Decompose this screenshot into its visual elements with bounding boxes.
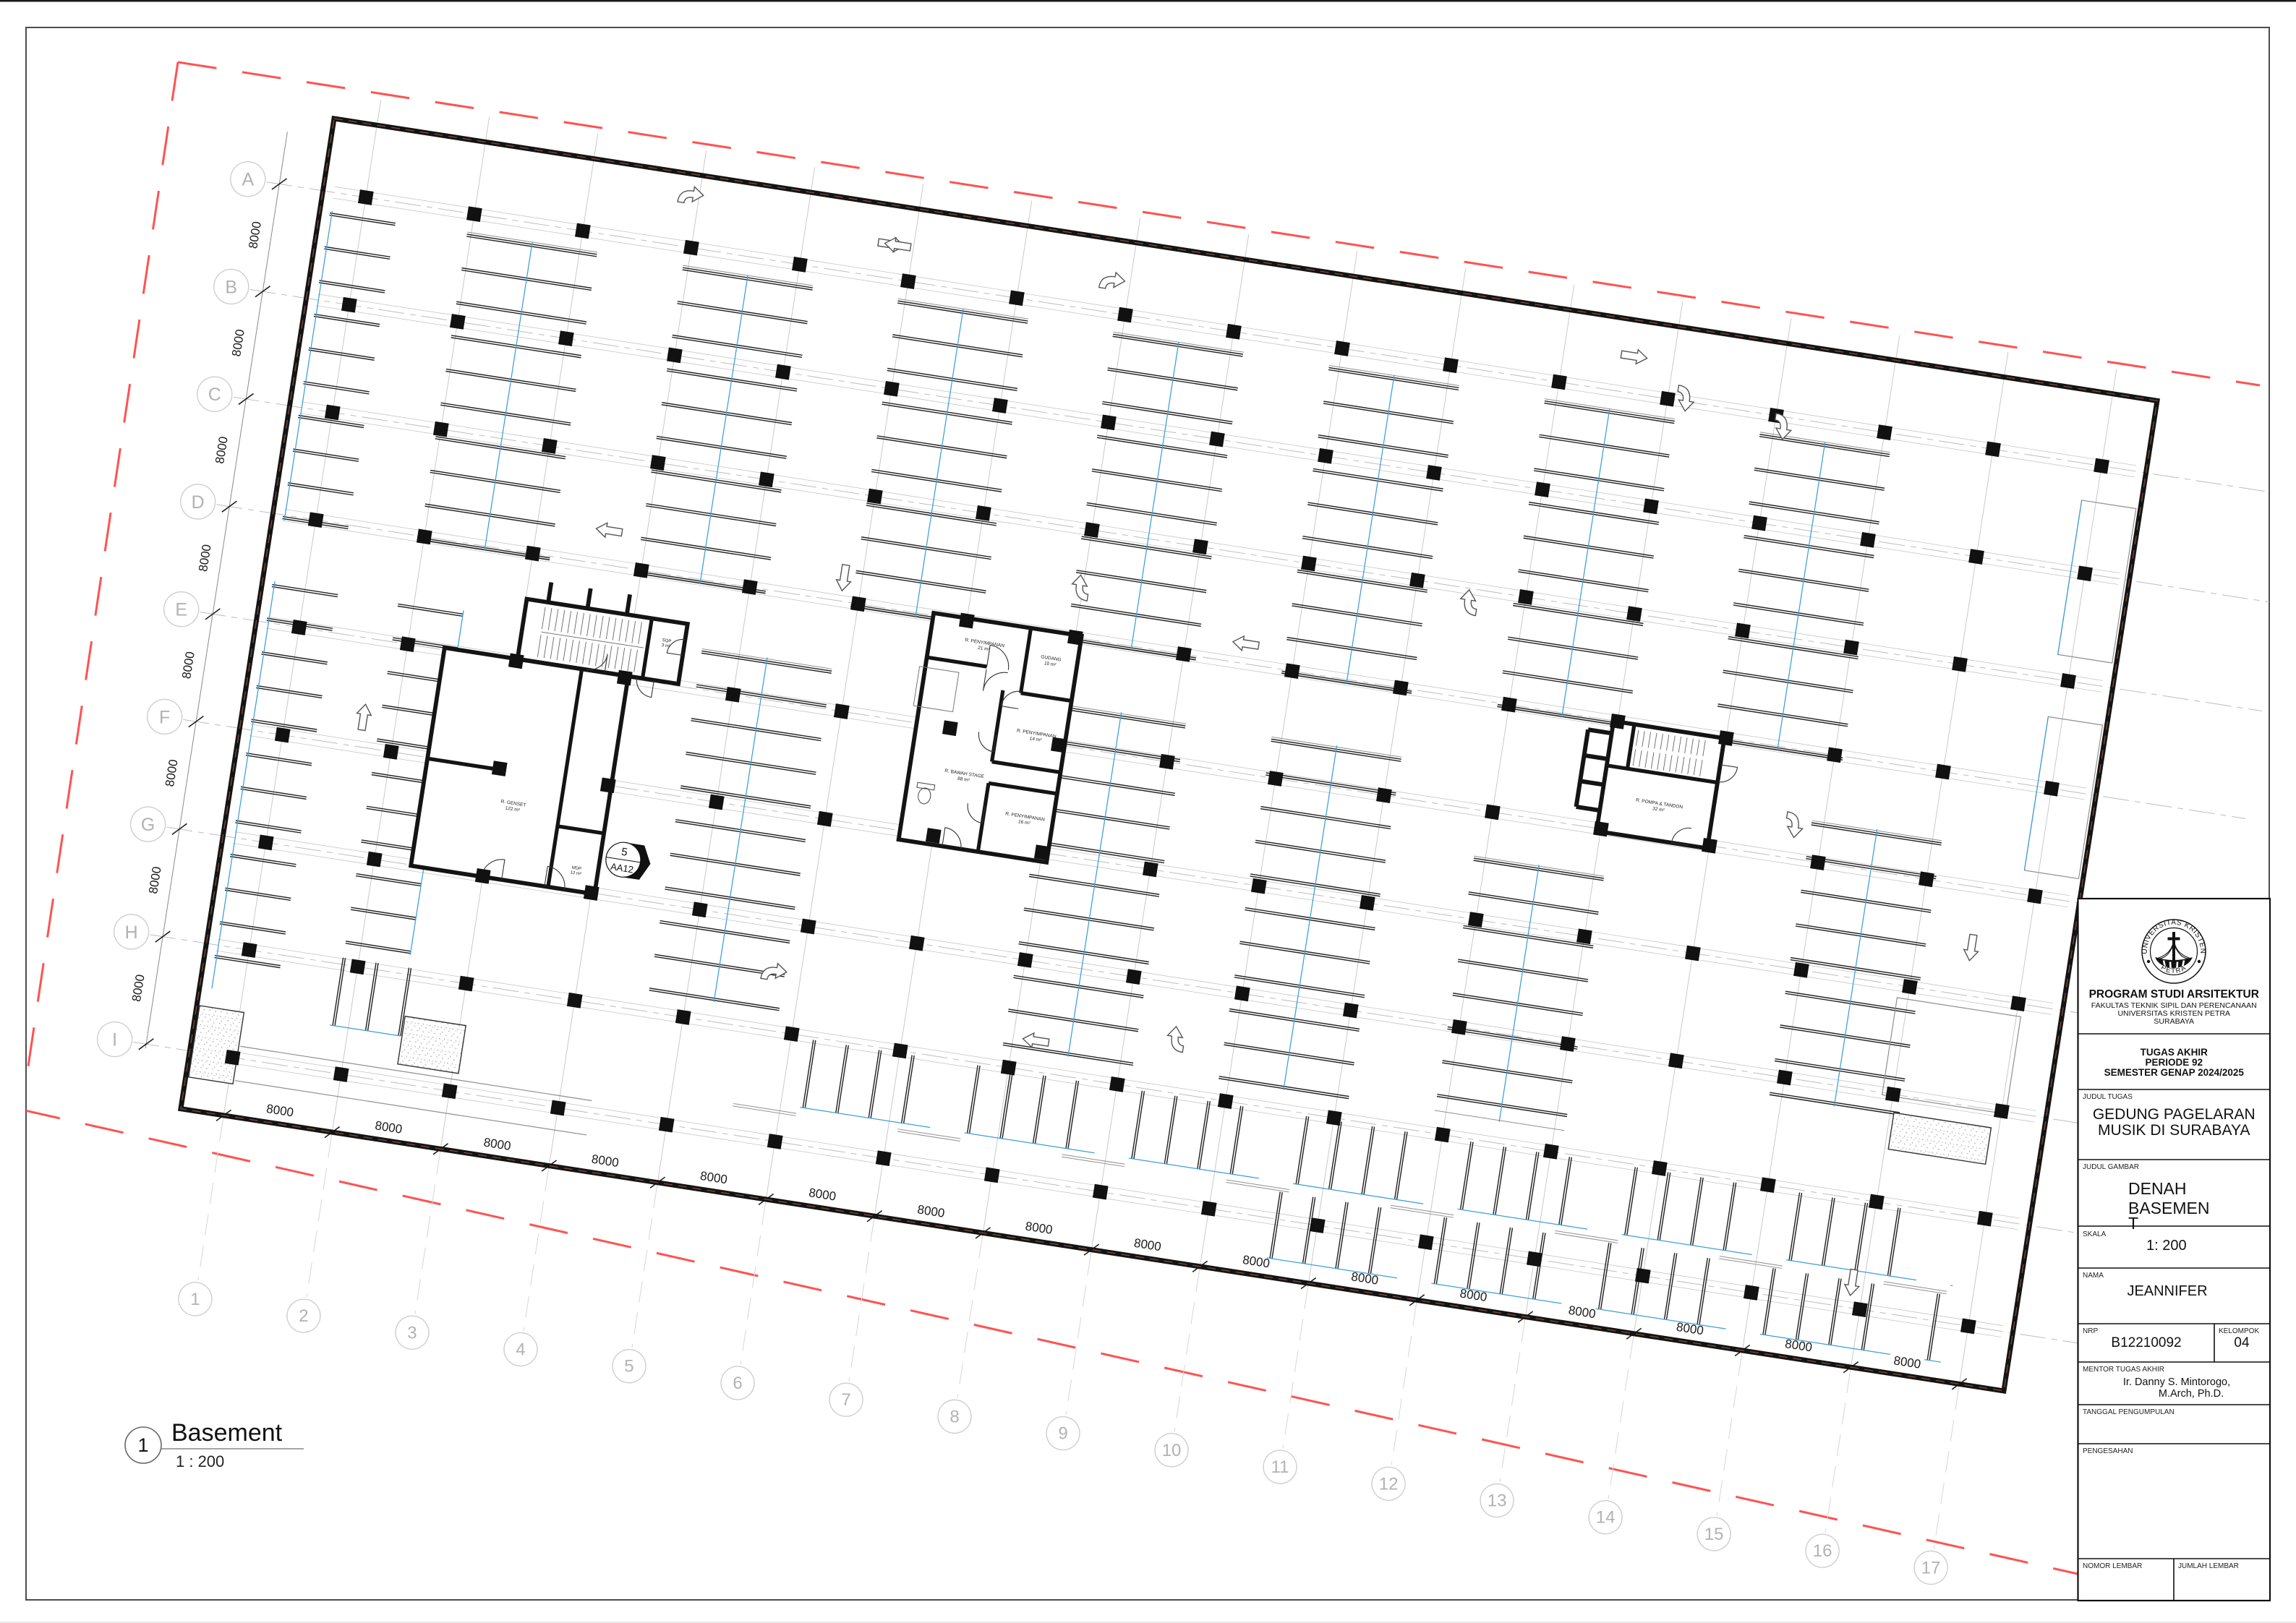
svg-text:12: 12 bbox=[1379, 1474, 1399, 1494]
svg-text:JUDUL GAMBAR: JUDUL GAMBAR bbox=[2083, 1163, 2139, 1171]
svg-text:1: 1 bbox=[137, 1434, 148, 1456]
svg-text:10: 10 bbox=[1162, 1441, 1182, 1460]
svg-text:2: 2 bbox=[299, 1306, 308, 1326]
svg-text:TUGAS AKHIR: TUGAS AKHIR bbox=[2141, 1047, 2208, 1058]
svg-text:SKALA: SKALA bbox=[2083, 1230, 2107, 1238]
svg-text:04: 04 bbox=[2234, 1335, 2250, 1350]
svg-text:GEDUNG PAGELARAN: GEDUNG PAGELARAN bbox=[2093, 1106, 2256, 1123]
svg-text:11: 11 bbox=[1271, 1457, 1289, 1477]
svg-text:MENTOR TUGAS AKHIR: MENTOR TUGAS AKHIR bbox=[2083, 1366, 2164, 1374]
svg-text:9: 9 bbox=[1058, 1424, 1067, 1444]
svg-text:KELOMPOK: KELOMPOK bbox=[2219, 1327, 2259, 1335]
svg-text:14: 14 bbox=[1596, 1508, 1616, 1528]
svg-text:D: D bbox=[192, 492, 205, 513]
svg-text:PERIODE 92: PERIODE 92 bbox=[2145, 1057, 2203, 1068]
svg-text:8: 8 bbox=[949, 1407, 959, 1426]
svg-text:13: 13 bbox=[1488, 1491, 1507, 1511]
svg-text:NOMOR LEMBAR: NOMOR LEMBAR bbox=[2083, 1562, 2142, 1570]
svg-text:4: 4 bbox=[516, 1340, 525, 1360]
svg-text:17: 17 bbox=[1921, 1558, 1941, 1577]
svg-text:BASEMEN: BASEMEN bbox=[2128, 1199, 2209, 1217]
svg-text:B12210092: B12210092 bbox=[2111, 1335, 2181, 1350]
svg-text:1: 1 bbox=[190, 1290, 200, 1309]
svg-text:16: 16 bbox=[1813, 1541, 1832, 1561]
svg-text:PROGRAM STUDI ARSITEKTUR: PROGRAM STUDI ARSITEKTUR bbox=[2089, 988, 2259, 1001]
svg-text:JUDUL TUGAS: JUDUL TUGAS bbox=[2083, 1093, 2133, 1101]
svg-text:JUMLAH LEMBAR: JUMLAH LEMBAR bbox=[2178, 1562, 2239, 1570]
svg-text:M.Arch, Ph.D.: M.Arch, Ph.D. bbox=[2159, 1388, 2224, 1400]
svg-text:T: T bbox=[2128, 1214, 2138, 1233]
svg-text:MUSIK DI SURABAYA: MUSIK DI SURABAYA bbox=[2098, 1122, 2250, 1139]
svg-text:SEMESTER GENAP 2024/2025: SEMESTER GENAP 2024/2025 bbox=[2104, 1067, 2245, 1078]
svg-text:Ir. Danny S. Mintorogo,: Ir. Danny S. Mintorogo, bbox=[2123, 1376, 2230, 1388]
svg-text:NAMA: NAMA bbox=[2083, 1272, 2104, 1280]
svg-text:3: 3 bbox=[407, 1323, 417, 1342]
svg-text:G: G bbox=[141, 815, 155, 835]
svg-text:5: 5 bbox=[624, 1357, 633, 1376]
svg-text:6: 6 bbox=[733, 1374, 742, 1393]
svg-text:15: 15 bbox=[1704, 1525, 1724, 1544]
svg-text:SURABAYA: SURABAYA bbox=[2154, 1017, 2194, 1026]
svg-text:DENAH: DENAH bbox=[2128, 1179, 2187, 1198]
svg-text:H: H bbox=[125, 922, 138, 943]
svg-text:F: F bbox=[159, 707, 170, 727]
svg-text:A: A bbox=[242, 170, 254, 190]
svg-text:1: 200: 1: 200 bbox=[2146, 1238, 2187, 1254]
svg-text:E: E bbox=[175, 600, 187, 620]
svg-text:I: I bbox=[112, 1030, 117, 1050]
svg-text:B: B bbox=[225, 277, 237, 297]
svg-text:NRP: NRP bbox=[2083, 1327, 2098, 1335]
svg-text:TANGGAL PENGUMPULAN: TANGGAL PENGUMPULAN bbox=[2083, 1408, 2175, 1416]
svg-text:JEANNIFER: JEANNIFER bbox=[2127, 1283, 2207, 1299]
svg-text:1 : 200: 1 : 200 bbox=[176, 1452, 224, 1470]
svg-text:C: C bbox=[208, 385, 221, 405]
svg-text:7: 7 bbox=[841, 1390, 850, 1410]
svg-text:PENGESAHAN: PENGESAHAN bbox=[2083, 1447, 2133, 1455]
svg-text:Basement: Basement bbox=[171, 1419, 283, 1447]
